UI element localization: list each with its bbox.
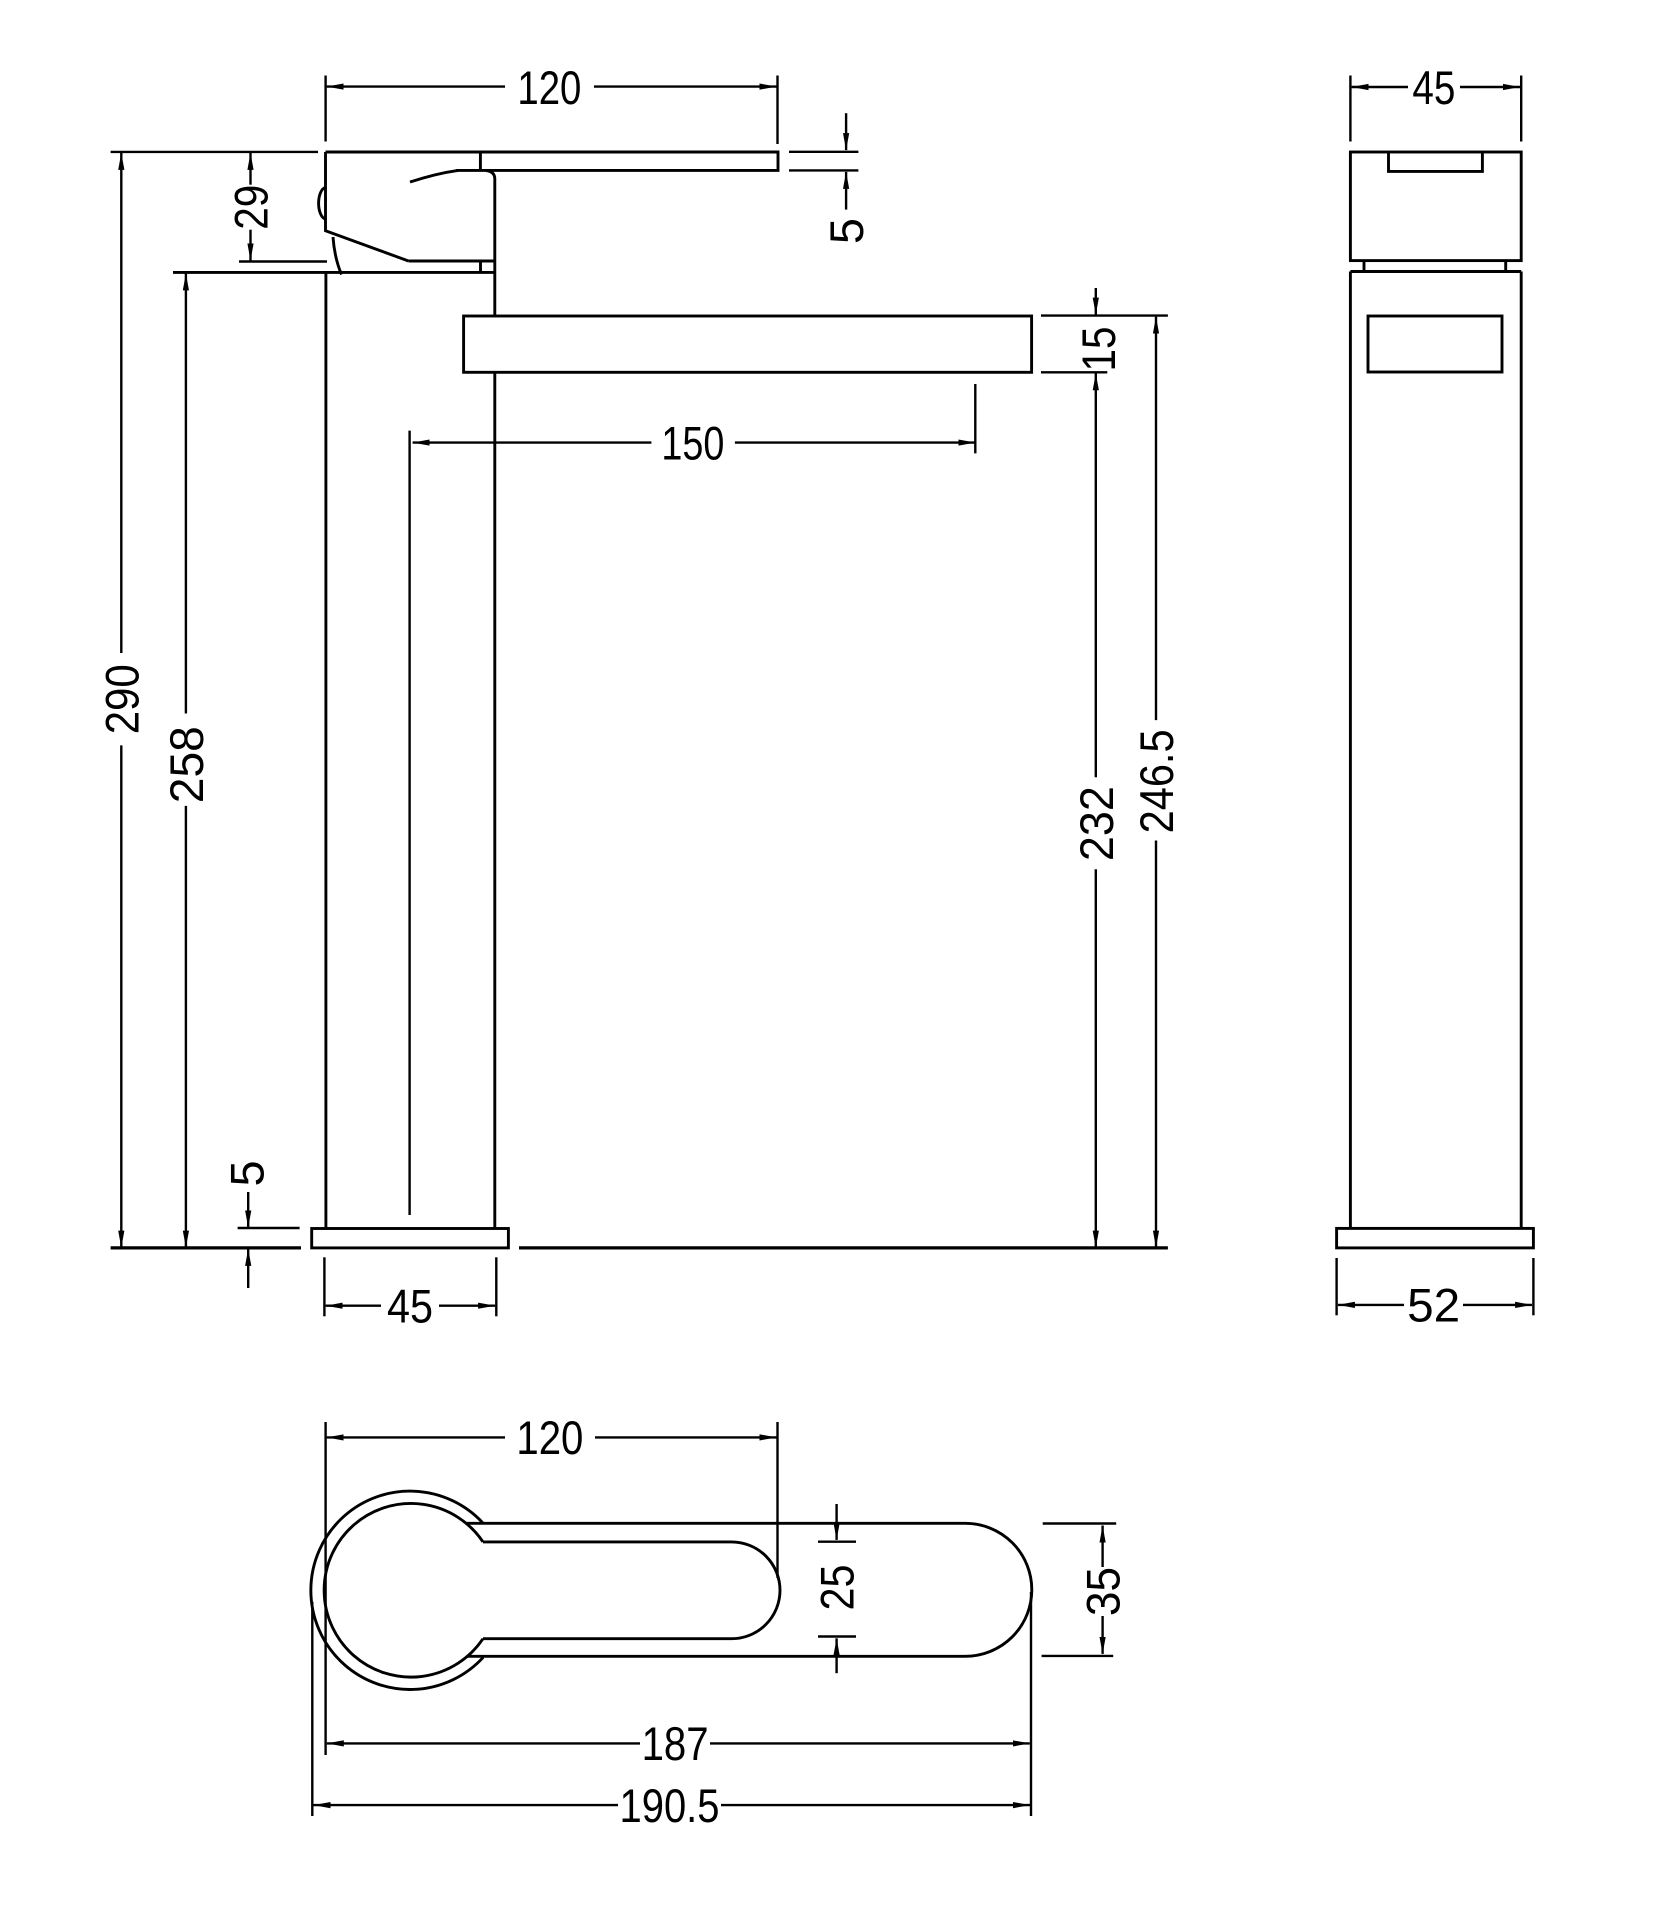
svg-text:45: 45 (1412, 61, 1455, 114)
svg-text:150: 150 (661, 416, 724, 469)
svg-text:290: 290 (95, 664, 148, 734)
svg-text:120: 120 (516, 1411, 583, 1464)
svg-text:120: 120 (517, 61, 581, 114)
svg-text:5: 5 (221, 1160, 274, 1186)
svg-text:187: 187 (642, 1717, 709, 1770)
svg-text:35: 35 (1076, 1567, 1129, 1616)
svg-text:52: 52 (1407, 1279, 1460, 1332)
svg-text:190.5: 190.5 (620, 1779, 720, 1832)
svg-text:5: 5 (820, 218, 873, 244)
svg-text:246.5: 246.5 (1130, 729, 1183, 833)
svg-text:45: 45 (387, 1279, 433, 1332)
svg-text:232: 232 (1070, 786, 1123, 861)
svg-text:25: 25 (810, 1565, 863, 1611)
svg-text:29: 29 (224, 185, 277, 230)
svg-text:258: 258 (160, 726, 213, 803)
svg-text:15: 15 (1072, 327, 1125, 372)
